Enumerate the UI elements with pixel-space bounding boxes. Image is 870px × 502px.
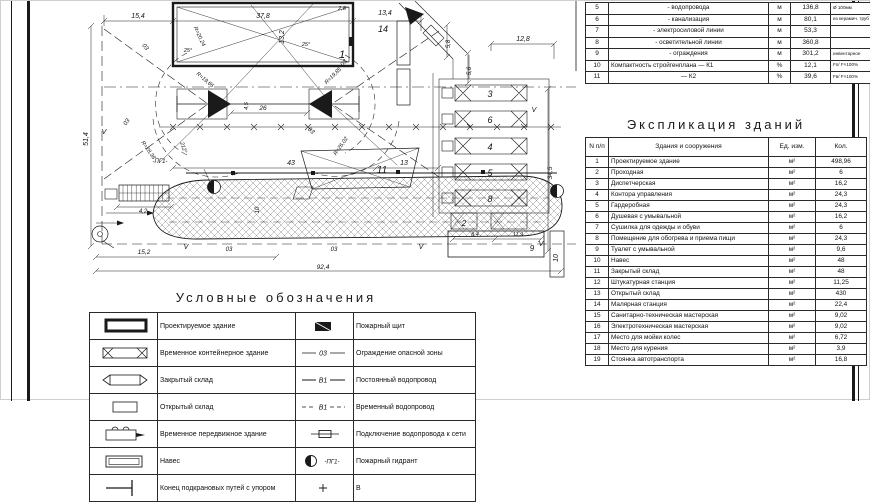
building-qty: 16,8: [816, 355, 867, 366]
plan-label: 15,4: [131, 13, 145, 20]
plan-label: V: [184, 244, 190, 251]
legend-symbol-cell: [90, 421, 158, 448]
explication-row: 17Место для мойки колесм²6,72: [586, 333, 867, 344]
legend-symbol-cell: [296, 421, 354, 448]
building-num: 18: [586, 344, 609, 355]
explication-row: 11Закрытый складм²48: [586, 267, 867, 278]
plan-label: 10: [553, 254, 560, 262]
building-unit: м²: [769, 344, 816, 355]
explication-row: 7Сушилка для одежды и обувим²6: [586, 223, 867, 234]
plan-label: 34,5: [547, 166, 554, 179]
plan-label: R=19,85: [324, 66, 344, 86]
building-num: 10: [586, 256, 609, 267]
indicator-name: - ограждения: [609, 49, 769, 61]
building-num: 14: [586, 300, 609, 311]
legend-symbol-cell: В1: [296, 394, 354, 421]
building-unit: м²: [769, 223, 816, 234]
building-unit: м²: [769, 333, 816, 344]
blueprint-sheet: { "top_table": { "rows": [ {"num":"5","n…: [0, 0, 870, 400]
plan-label: 14: [378, 24, 388, 34]
header-name: Здания и сооружения: [609, 138, 769, 157]
building-qty: 16,2: [816, 212, 867, 223]
building-name: Место для курения: [609, 344, 769, 355]
plan-label: 3: [487, 89, 492, 99]
explication-title: Экспликация зданий: [586, 117, 846, 132]
building-name: Проходная: [609, 168, 769, 179]
legend-table: Проектируемое зданиеПожарный щитВременно…: [89, 312, 476, 502]
indicator-row: 9- ограждениям301,2инвентарное: [586, 49, 870, 61]
building-qty: 48: [816, 267, 867, 278]
plan-label: 10: [255, 206, 261, 213]
plan-label: 4,5: [244, 101, 250, 110]
indicator-note: Fв/ F×100%: [831, 72, 870, 84]
indicator-unit: м: [769, 3, 791, 15]
plan-label: 4: [487, 142, 492, 152]
building-14: [397, 21, 410, 65]
explication-row: 19Стоянка автотранспортам²16,8: [586, 355, 867, 366]
indicator-unit: м: [769, 49, 791, 61]
building-name: Штукатурная станция: [609, 278, 769, 289]
indicator-name: - канализация: [609, 14, 769, 26]
svg-text:03: 03: [319, 351, 327, 358]
legend-row: Временное контейнерное здание03Ограждени…: [90, 340, 476, 367]
legend-symbol-cell: [90, 367, 158, 394]
indicator-name: Компактность стройгенплана — К1: [609, 60, 769, 72]
indicator-name: - электросиловой линии: [609, 26, 769, 38]
plan-label: 15,2: [138, 249, 151, 256]
plan-label: 03: [331, 247, 338, 253]
legend-row: Проектируемое зданиеПожарный щит: [90, 313, 476, 340]
explication-row: 15Санитарно-техническая мастерскаям²9,02: [586, 311, 867, 322]
plan-label: V: [102, 129, 108, 136]
indicator-qty: 80,1: [791, 14, 831, 26]
explication-table: N п/пЗдания и сооруженияЕд. изм.Кол.1Про…: [585, 137, 867, 366]
plan-label: 5,6: [467, 66, 473, 75]
plan-label: 8: [487, 194, 492, 204]
building-qty: 9,02: [816, 311, 867, 322]
legend-label: В: [354, 475, 476, 502]
indicator-row: 11— К2%39,6Fв/ F×100%: [586, 72, 870, 84]
plan-label: 03: [306, 127, 315, 136]
shed-symbol: [98, 448, 150, 474]
building-num: 13: [586, 289, 609, 300]
building-qty: 11,25: [816, 278, 867, 289]
crane-rail-end-symbol: [98, 475, 150, 501]
legend-label: Подключение водопровода к сети: [354, 421, 476, 448]
plan-label: R=26,02: [333, 136, 350, 157]
fire-shield-symbol: [299, 313, 351, 339]
open-warehouse-symbol: [98, 394, 150, 420]
indicator-qty: 360,8: [791, 37, 831, 49]
building-num: 12: [586, 278, 609, 289]
indicator-note: из керамич. труб: [831, 14, 870, 26]
building-name: Санитарно-техническая мастерская: [609, 311, 769, 322]
svg-text:-ПГ1-: -ПГ1-: [324, 460, 339, 466]
indicator-row: 6- канализациям80,1из керамич. труб: [586, 14, 870, 26]
legend-symbol-cell: В1: [296, 367, 354, 394]
building-qty: 6: [816, 223, 867, 234]
explication-row: 5Гардеробнаям²24,3: [586, 201, 867, 212]
building-num: 11: [586, 267, 609, 278]
building-unit: м²: [769, 168, 816, 179]
building-qty: 48: [816, 256, 867, 267]
building-num: 19: [586, 355, 609, 366]
plan-label: 6: [487, 115, 492, 125]
legend-symbol-cell: [90, 313, 158, 340]
explication-row: 14Малярная станциям²22,4: [586, 300, 867, 311]
indicator-row: 8- осветительной линиим360,8: [586, 37, 870, 49]
building-name: Открытый склад: [609, 289, 769, 300]
building-unit: м²: [769, 190, 816, 201]
legend-label: Проектируемое здание: [158, 313, 296, 340]
indicator-note: инвентарное: [831, 49, 870, 61]
legend-label: Открытый склад: [158, 394, 296, 421]
svg-text:В1: В1: [318, 378, 327, 385]
explication-header-row: N п/пЗдания и сооруженияЕд. изм.Кол.: [586, 138, 867, 157]
indicator-name: - водопровода: [609, 3, 769, 15]
indicator-note: Fп/ F×100%: [831, 60, 870, 72]
building-qty: 22,4: [816, 300, 867, 311]
building-unit: м²: [769, 267, 816, 278]
legend-symbol-cell: [90, 448, 158, 475]
plan-label: 12,8: [516, 36, 530, 43]
plan-label: 43: [287, 160, 295, 167]
plan-label: 2: [461, 219, 467, 228]
explication-row: 6Душевая с умывальнойм²16,2: [586, 212, 867, 223]
header-qty: Кол.: [816, 138, 867, 157]
water-connection-symbol: [299, 421, 351, 447]
legend-symbol-cell: 03: [296, 340, 354, 367]
legend-label: Временный водопровод: [354, 394, 476, 421]
plan-label: 03: [123, 117, 132, 126]
indicator-unit: %: [769, 72, 791, 84]
indicator-unit: м: [769, 37, 791, 49]
plan-label: 26: [258, 105, 267, 112]
indicator-row: 7- электросиловой линиим53,3: [586, 26, 870, 38]
plan-label: -ПГ1-: [153, 159, 168, 165]
legend-label: Пожарный гидрант: [354, 448, 476, 475]
indicator-qty: 39,6: [791, 72, 831, 84]
building-num: 15: [586, 311, 609, 322]
indicators-table: 5- водопроводам136,8Ø 100мм6- канализаци…: [585, 2, 870, 84]
building-qty: 16,2: [816, 179, 867, 190]
building-name: Туалет с умывальной: [609, 245, 769, 256]
building-num: 9: [586, 245, 609, 256]
legend-row: Временное передвижное зданиеПодключение …: [90, 421, 476, 448]
building-name: Контора управления: [609, 190, 769, 201]
building-name: Закрытый склад: [609, 267, 769, 278]
site-plan: 15,437,82,813,413,251,4114R=20,2425°25°R…: [1, 1, 579, 293]
indicator-qty: 12,1: [791, 60, 831, 72]
legend-row: Закрытый складВ1Постоянный водопровод: [90, 367, 476, 394]
explication-row: 8Помещение для обогрева и приема пищим²2…: [586, 234, 867, 245]
plan-label: 5,8: [446, 39, 452, 48]
legend-label: Временное передвижное здание: [158, 421, 296, 448]
building-qty: 3,9: [816, 344, 867, 355]
indicator-num: 9: [586, 49, 609, 61]
closed-warehouse-symbol: [98, 367, 150, 393]
building-num: 5: [586, 201, 609, 212]
building-qty: 24,3: [816, 201, 867, 212]
building-num: 8: [586, 234, 609, 245]
plan-label: 51,4: [83, 132, 90, 146]
building-qty: 9,02: [816, 322, 867, 333]
building-qty: 498,96: [816, 157, 867, 168]
legend-label: Конец подкрановых путей с упором: [158, 475, 296, 502]
site-plan-drawing: 15,437,82,813,413,251,4114R=20,2425°25°R…: [1, 1, 579, 293]
plan-label: R=20,24: [192, 26, 206, 48]
explication-row: 13Открытый складм²430: [586, 289, 867, 300]
plan-label: 8,4: [471, 232, 479, 238]
building-unit: м²: [769, 278, 816, 289]
legend-row: Открытый складВ1Временный водопровод: [90, 394, 476, 421]
legend-label: Ограждение опасной зоны: [354, 340, 476, 367]
danger-zone-line-symbol: 03: [299, 340, 351, 366]
legend-symbol-cell: [296, 475, 354, 502]
building-name: Помещение для обогрева и приема пищи: [609, 234, 769, 245]
indicator-row: 10Компактность стройгенплана — К1%12,1Fп…: [586, 60, 870, 72]
indicator-num: 11: [586, 72, 609, 84]
explication-row: 18Место для курениям²3,9: [586, 344, 867, 355]
building-unit: м²: [769, 311, 816, 322]
building-num: 16: [586, 322, 609, 333]
indicator-num: 6: [586, 14, 609, 26]
building-name: Стоянка автотранспорта: [609, 355, 769, 366]
building-unit: м²: [769, 300, 816, 311]
legend-label: Постоянный водопровод: [354, 367, 476, 394]
building-name: Диспетчерская: [609, 179, 769, 190]
indicator-num: 5: [586, 3, 609, 15]
building-unit: м²: [769, 201, 816, 212]
legend-label: Временное контейнерное здание: [158, 340, 296, 367]
plan-linework: [92, 1, 576, 277]
legend-title: Условные обозначения: [89, 290, 463, 305]
explication-row: 1Проектируемое зданием²498,96: [586, 157, 867, 168]
legend-label: Пожарный щит: [354, 313, 476, 340]
plan-label: 13,2: [279, 30, 286, 44]
plan-label: 13,4: [378, 10, 392, 17]
building-unit: м²: [769, 289, 816, 300]
building-name: Место для мойки колес: [609, 333, 769, 344]
legend-symbol-cell: -ПГ1-: [296, 448, 354, 475]
header-num: N п/п: [586, 138, 609, 157]
building-qty: 9,6: [816, 245, 867, 256]
explication-row: 16Электротехническая мастерскаям²9,02: [586, 322, 867, 333]
legend-symbol-cell: [296, 313, 354, 340]
building-unit: м²: [769, 212, 816, 223]
legend-label: Навес: [158, 448, 296, 475]
legend-label: Закрытый склад: [158, 367, 296, 394]
plan-label: 25°: [301, 42, 311, 48]
plan-label: 212°: [178, 140, 188, 154]
header-unit: Ед. изм.: [769, 138, 816, 157]
indicator-note: Ø 100мм: [831, 3, 870, 15]
explication-row: 3Диспетчерскаям²16,2: [586, 179, 867, 190]
indicator-unit: м: [769, 14, 791, 26]
building-num: 17: [586, 333, 609, 344]
indicator-name: — К2: [609, 72, 769, 84]
indicator-row: 5- водопроводам136,8Ø 100мм: [586, 3, 870, 15]
building-num: 2: [586, 168, 609, 179]
mobile-building-symbol: [98, 421, 150, 447]
legend-row: Навес-ПГ1-Пожарный гидрант: [90, 448, 476, 475]
temp-water-line-symbol: В1: [299, 394, 351, 420]
plan-label: V: [419, 244, 425, 251]
indicator-qty: 301,2: [791, 49, 831, 61]
building-num: 7: [586, 223, 609, 234]
plan-label: 11,9: [513, 232, 523, 238]
legend-symbol-cell: [90, 340, 158, 367]
building-unit: м²: [769, 179, 816, 190]
indicator-num: 10: [586, 60, 609, 72]
indicator-unit: %: [769, 60, 791, 72]
plan-label: 37,8: [256, 13, 270, 20]
plan-label: 92,4: [317, 264, 330, 271]
projected-building-symbol: [98, 313, 150, 339]
building-num: 1: [586, 157, 609, 168]
indicator-unit: м: [769, 26, 791, 38]
building-name: Душевая с умывальной: [609, 212, 769, 223]
plan-label: 4,2: [139, 209, 148, 215]
legend-symbol-cell: [90, 394, 158, 421]
explication-row: 10Навесм²48: [586, 256, 867, 267]
building-unit: м²: [769, 234, 816, 245]
indicator-num: 7: [586, 26, 609, 38]
plan-label: 9: [530, 244, 535, 253]
building-unit: м²: [769, 355, 816, 366]
plan-label: 11: [377, 165, 387, 176]
hydrant-symbol: -ПГ1-: [299, 448, 351, 474]
legend-symbol-cell: [90, 475, 158, 502]
permanent-water-line-symbol: В1: [299, 367, 351, 393]
plus-symbol: [299, 475, 351, 501]
building-qty: 24,3: [816, 234, 867, 245]
building-name: Электротехническая мастерская: [609, 322, 769, 333]
building-unit: м²: [769, 157, 816, 168]
temp-container-building-symbol: [98, 340, 150, 366]
building-num: 6: [586, 212, 609, 223]
legend-row: Конец подкрановых путей с упоромВ: [90, 475, 476, 502]
indicator-qty: 53,3: [791, 26, 831, 38]
building-num: 3: [586, 179, 609, 190]
plan-label: 25°: [183, 48, 193, 54]
indicator-qty: 136,8: [791, 3, 831, 15]
indicator-note: [831, 37, 870, 49]
plan-label: V: [532, 107, 538, 114]
explication-row: 9Туалет с умывальнойм²9,6: [586, 245, 867, 256]
building-name: Малярная станция: [609, 300, 769, 311]
plan-label: 2,8: [337, 6, 347, 12]
building-name: Навес: [609, 256, 769, 267]
plan-label: 03: [226, 247, 233, 253]
explication-row: 4Контора управлениям²24,3: [586, 190, 867, 201]
building-unit: м²: [769, 322, 816, 333]
plan-label: 03: [140, 43, 149, 52]
building-qty: 430: [816, 289, 867, 300]
building-num: 4: [586, 190, 609, 201]
explication-row: 2Проходнаям²6: [586, 168, 867, 179]
building-qty: 6: [816, 168, 867, 179]
building-qty: 6,72: [816, 333, 867, 344]
explication-row: 12Штукатурная станциям²11,25: [586, 278, 867, 289]
indicator-num: 8: [586, 37, 609, 49]
plan-label: 13: [400, 160, 408, 167]
indicator-note: [831, 26, 870, 38]
building-qty: 24,3: [816, 190, 867, 201]
building-unit: м²: [769, 256, 816, 267]
building-name: Проектируемое здание: [609, 157, 769, 168]
building-name: Сушилка для одежды и обуви: [609, 223, 769, 234]
indicator-name: - осветительной линии: [609, 37, 769, 49]
building-name: Гардеробная: [609, 201, 769, 212]
svg-text:В1: В1: [318, 405, 327, 412]
building-unit: м²: [769, 245, 816, 256]
